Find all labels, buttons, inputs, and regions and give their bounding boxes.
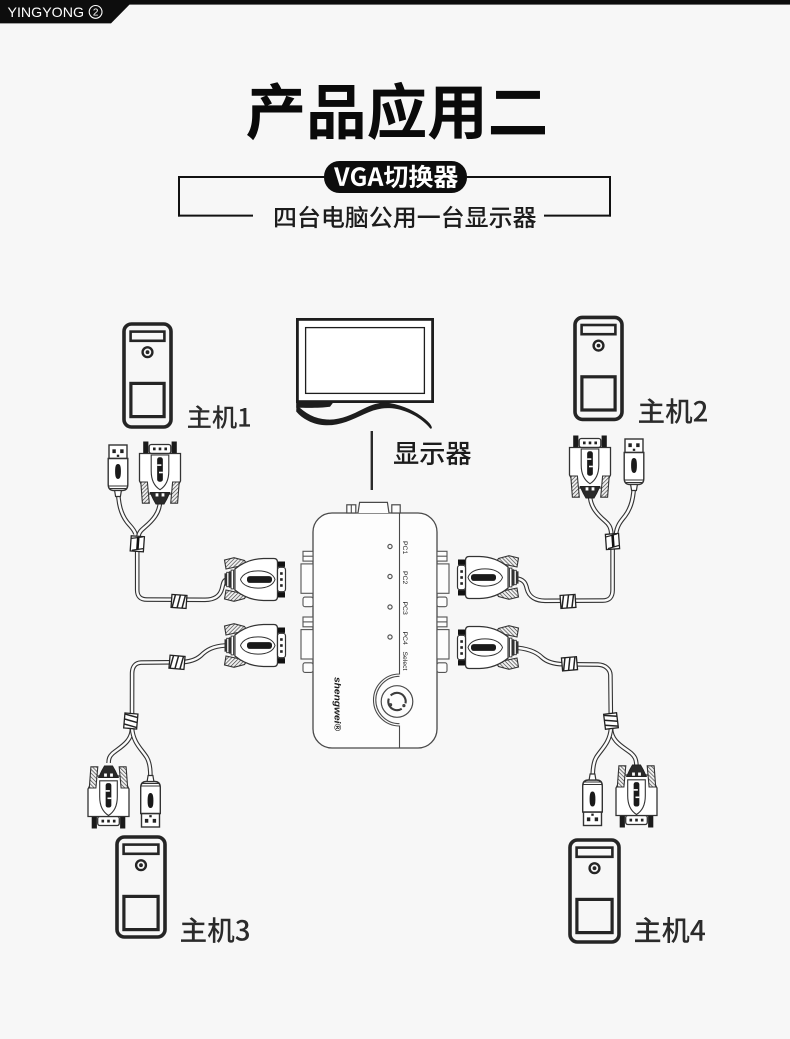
svg-text:PC1: PC1	[401, 541, 408, 554]
svg-text:PC2: PC2	[401, 571, 408, 584]
svg-text:PC4: PC4	[401, 632, 408, 645]
svg-text:shengwei®: shengwei®	[332, 677, 343, 731]
svg-text:YINGYONG: YINGYONG	[8, 4, 85, 20]
svg-text:2: 2	[93, 7, 99, 18]
svg-text:PC3: PC3	[401, 602, 408, 615]
svg-text:Select: Select	[401, 652, 408, 671]
